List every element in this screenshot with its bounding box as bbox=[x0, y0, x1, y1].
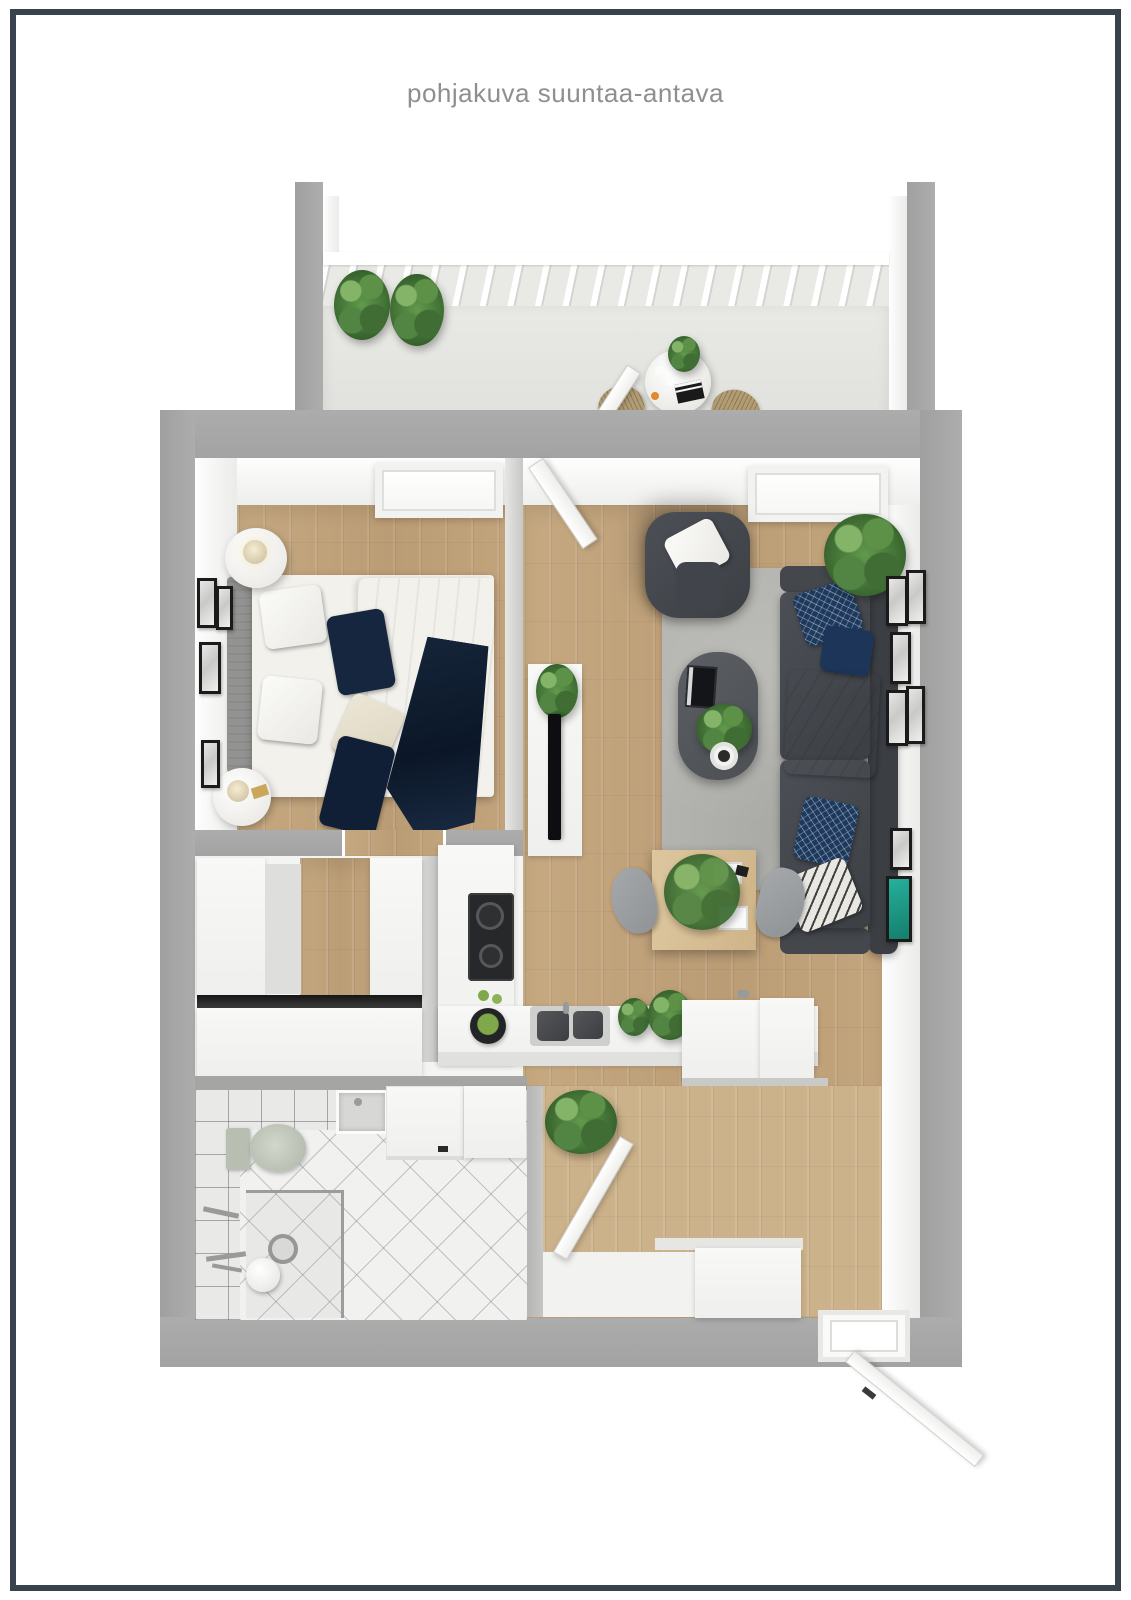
entry-white-zone bbox=[543, 1252, 703, 1317]
sofa-armrest-bottom bbox=[780, 928, 870, 954]
gallery-frame-4 bbox=[886, 690, 908, 746]
kitchen-peninsula-2 bbox=[760, 998, 814, 1080]
wall-hall-kitchen bbox=[422, 856, 438, 1062]
shoe-cabinet bbox=[695, 1248, 801, 1318]
toilet-tank bbox=[226, 1128, 250, 1170]
shower-glass-vertical bbox=[341, 1190, 344, 1318]
bedroom-frame-2 bbox=[216, 586, 233, 630]
armchair-seat bbox=[676, 562, 722, 610]
bedroom-window bbox=[375, 463, 503, 518]
gallery-frame-3 bbox=[890, 632, 911, 684]
hob-burner-1 bbox=[476, 902, 504, 930]
bistro-cup-1 bbox=[655, 366, 664, 375]
sofa-pillow-navy-2 bbox=[819, 625, 875, 678]
closet-shadow-gap bbox=[197, 995, 422, 1008]
coffee-table-tray-bowl bbox=[718, 750, 730, 762]
bedroom-doorway bbox=[342, 830, 446, 856]
wall-bedroom-living bbox=[505, 458, 523, 855]
dining-centerpiece-plant bbox=[664, 854, 740, 930]
gallery-frame-5 bbox=[906, 686, 925, 744]
floor-drain bbox=[268, 1234, 298, 1264]
washbasin bbox=[336, 1090, 388, 1134]
wardrobe-left bbox=[197, 858, 265, 996]
front-door-handle bbox=[862, 1386, 877, 1399]
bistro-table-plant bbox=[668, 336, 700, 372]
wall-bathroom-entry bbox=[527, 1086, 543, 1317]
television bbox=[548, 714, 561, 840]
outer-wall-left bbox=[160, 410, 195, 1367]
washer-control bbox=[438, 1146, 448, 1152]
sink-basin-1 bbox=[537, 1011, 569, 1041]
bathroom-cabinet bbox=[464, 1086, 526, 1158]
gallery-frame-2 bbox=[906, 570, 926, 624]
bedroom-frame-1 bbox=[197, 578, 217, 628]
balcony-plant-1 bbox=[334, 270, 390, 340]
balcony-wall-right bbox=[907, 182, 935, 428]
bedroom-frame-3 bbox=[199, 642, 221, 694]
teal-artwork bbox=[886, 876, 912, 942]
loose-apple-2 bbox=[492, 994, 502, 1004]
basin-faucet bbox=[354, 1098, 362, 1106]
wardrobe-left-side bbox=[265, 864, 301, 994]
sink-faucet bbox=[563, 1002, 569, 1014]
fruit-bowl bbox=[470, 1008, 506, 1044]
table-lamp-bottom bbox=[227, 780, 249, 802]
front-door-leaf bbox=[845, 1350, 984, 1467]
table-lamp-top bbox=[243, 540, 267, 564]
kitchen-herb-1 bbox=[618, 998, 650, 1036]
gallery-frame-1 bbox=[886, 576, 908, 626]
floor-plan-render bbox=[0, 0, 1131, 1600]
hallway-floor bbox=[300, 858, 372, 1008]
coffee-table-book bbox=[685, 665, 718, 709]
washing-machine bbox=[386, 1086, 464, 1160]
bistro-cup-2 bbox=[666, 377, 675, 386]
balcony-plant-2 bbox=[390, 274, 444, 346]
gallery-frame-6 bbox=[890, 828, 912, 870]
front-door-mat bbox=[830, 1320, 898, 1352]
wardrobe-wide bbox=[197, 1008, 422, 1076]
balcony-wall-right-face bbox=[889, 196, 907, 426]
entry-plant bbox=[545, 1090, 617, 1154]
outer-wall-top bbox=[160, 410, 962, 458]
hob-burner-2 bbox=[479, 944, 503, 968]
shower-stool bbox=[246, 1258, 280, 1292]
wardrobe-right bbox=[370, 858, 422, 996]
balcony-railing bbox=[323, 252, 889, 265]
loose-apple-1 bbox=[478, 990, 489, 1001]
balcony-wall-left bbox=[295, 182, 323, 428]
tv-console-plant bbox=[536, 664, 578, 718]
outer-wall-right bbox=[920, 410, 962, 1367]
bed-pillow-white-2 bbox=[257, 675, 323, 745]
bedroom-frame-4 bbox=[201, 740, 220, 788]
toilet-bowl bbox=[250, 1124, 306, 1172]
kitchen-peninsula-1 bbox=[682, 1000, 760, 1080]
sink-basin-2 bbox=[573, 1011, 603, 1039]
bistro-orange-fruit bbox=[651, 392, 659, 400]
peninsula-fitting bbox=[737, 990, 749, 998]
sofa-throw-white bbox=[783, 670, 880, 779]
bed-pillow-white-1 bbox=[258, 584, 327, 650]
